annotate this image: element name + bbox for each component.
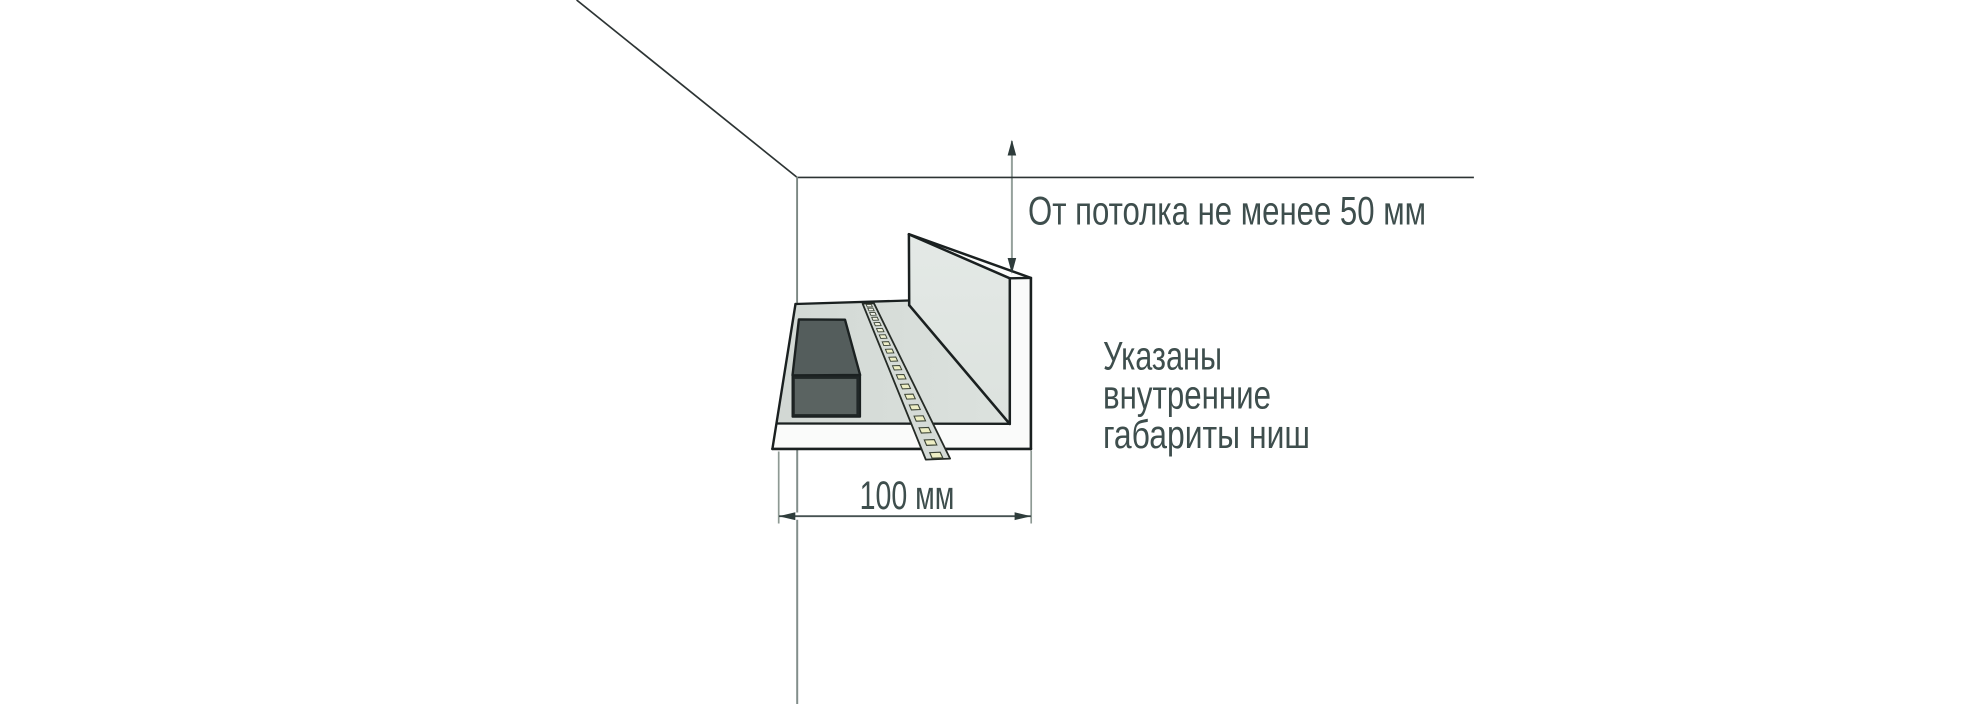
svg-text:100 мм: 100 мм bbox=[860, 474, 955, 518]
svg-text:Указаны: Указаны bbox=[1103, 335, 1222, 379]
svg-text:внутренние: внутренние bbox=[1103, 374, 1271, 418]
svg-text:От потолка не менее 50 мм: От потолка не менее 50 мм bbox=[1028, 190, 1426, 234]
svg-text:габариты ниш: габариты ниш bbox=[1103, 413, 1310, 457]
